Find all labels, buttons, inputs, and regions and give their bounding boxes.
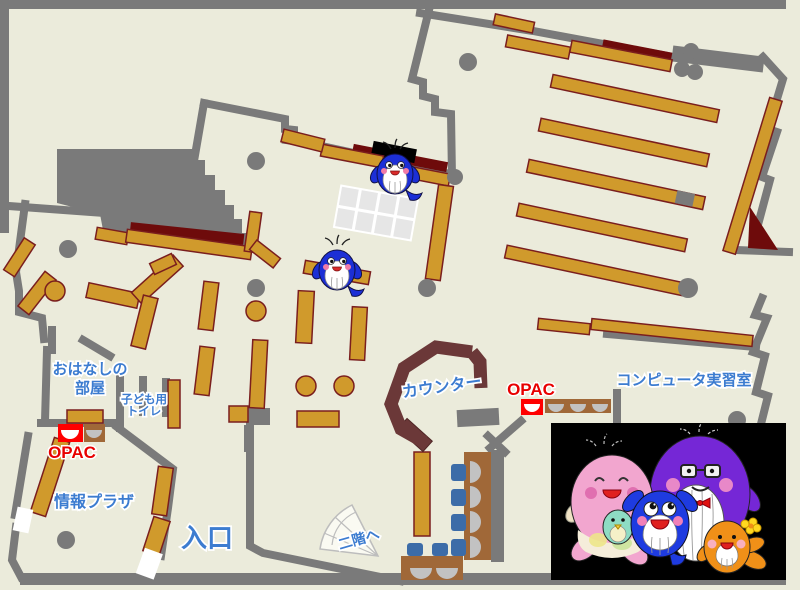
label-kids-toilet: 子ども用 (121, 393, 167, 406)
label-info-plaza: 情報プラザ (54, 492, 134, 511)
wall-top (8, 0, 786, 9)
whale-family-illustration (551, 423, 786, 580)
opac-terminal-left (58, 424, 105, 442)
label-opac-left: OPAC (48, 443, 96, 462)
label-opac-right: OPAC (507, 380, 555, 399)
label-computer-room: コンピュータ実習室 (616, 371, 751, 389)
library-floor-map: おはなしの 部屋 子ども用 トイレ OPAC 情報プラザ 入口 二階へ カウンタ… (0, 0, 800, 590)
wall-left (0, 0, 9, 233)
opac-terminal-right (521, 399, 611, 415)
floor-map-svg: おはなしの 部屋 子ども用 トイレ OPAC 情報プラザ 入口 二階へ カウンタ… (0, 0, 800, 590)
label-kids-toilet-2: トイレ (127, 405, 162, 418)
label-story-room: おはなしの (52, 361, 127, 378)
label-story-room-2: 部屋 (75, 379, 105, 397)
label-entrance: 入口 (181, 523, 233, 553)
